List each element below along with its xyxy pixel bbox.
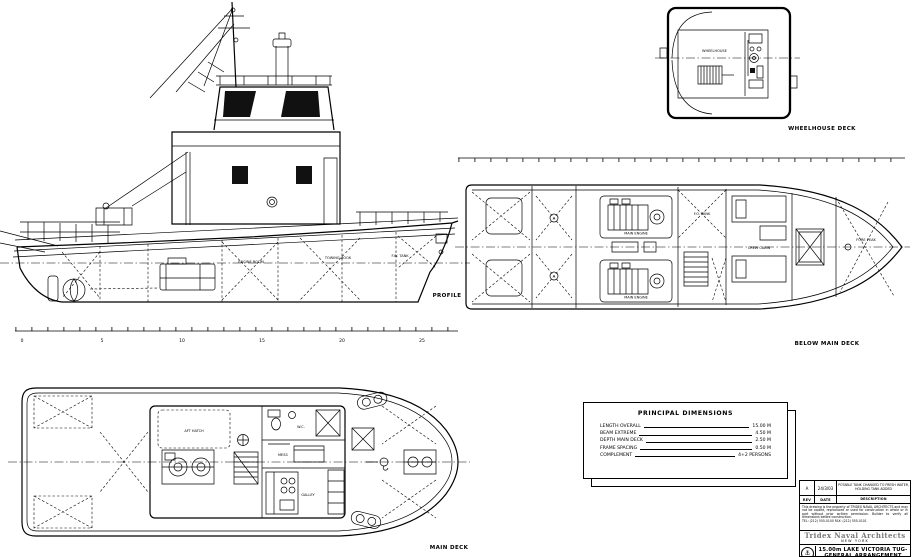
leader-line bbox=[644, 426, 750, 428]
main-deck-view: AFT HATCH W.C. bbox=[8, 388, 470, 551]
exhaust-stack bbox=[273, 33, 291, 85]
revision-description: POTABLE TANK CHANGED TO FRESH WATER, HOL… bbox=[837, 481, 910, 495]
dim-value: 15.00 M bbox=[752, 423, 771, 430]
mess-room: MESS bbox=[268, 444, 324, 462]
frame-number: 5 bbox=[101, 338, 104, 344]
profile-caption: PROFILE bbox=[433, 293, 462, 299]
leader-line bbox=[635, 455, 735, 457]
profile-frame-ruler: 0 5 10 15 20 25 bbox=[15, 329, 458, 344]
dim-value: 0.50 M bbox=[755, 445, 771, 452]
frame-number: 25 bbox=[419, 338, 425, 344]
wc-room: W.C. bbox=[268, 410, 340, 436]
description-header: DESCRIPTION bbox=[837, 496, 910, 503]
main-deck-stair bbox=[234, 452, 258, 484]
revision-date: 24/3/03 bbox=[815, 481, 837, 495]
leader-line bbox=[640, 448, 752, 450]
main-deck-caption: MAIN DECK bbox=[430, 545, 469, 551]
ga-drawing-sheet: ENGINE ROOM TOWING HOOK F.W. TANK 0 5 10… bbox=[0, 0, 912, 557]
dimension-row: BEAM EXTREME 4.50 M bbox=[600, 430, 771, 437]
title-block: A 24/3/03 POTABLE TANK CHANGED TO FRESH … bbox=[799, 480, 911, 557]
dim-value: 2.50 M bbox=[755, 437, 771, 444]
firm-name: Tridex Naval Architects bbox=[804, 532, 905, 539]
principal-dimensions-table: PRINCIPAL DIMENSIONS LENGTH OVERALL 15.0… bbox=[583, 402, 788, 479]
towing-hook-label: TOWING HOOK bbox=[324, 256, 352, 260]
fo-tank-label: F.O. TANK bbox=[694, 212, 711, 216]
date-header: DATE bbox=[815, 496, 837, 503]
property-note: This drawing is the property of TRIDEX N… bbox=[800, 504, 910, 531]
dimension-row: LENGTH OVERALL 15.00 M bbox=[600, 423, 771, 430]
wheelhouse-label: WHEELHOUSE bbox=[702, 49, 727, 53]
dim-label: COMPLEMENT bbox=[600, 452, 632, 459]
dim-label: DEPTH MAIN DECK bbox=[600, 437, 643, 444]
bollards bbox=[350, 391, 388, 530]
wheelhouse-deck-caption: WHEELHOUSE DECK bbox=[788, 126, 856, 132]
dimension-row: FRAME SPACING 0.50 M bbox=[600, 445, 771, 452]
revision-row: A 24/3/03 POTABLE TANK CHANGED TO FRESH … bbox=[800, 481, 910, 496]
frame-number: 10 bbox=[179, 338, 185, 344]
leader-line bbox=[646, 441, 752, 443]
below-deck-stair bbox=[684, 252, 708, 286]
profile-deckhouse bbox=[172, 132, 340, 224]
profile-view: ENGINE ROOM TOWING HOOK F.W. TANK 0 5 10… bbox=[0, 2, 470, 344]
propeller-rudder bbox=[48, 276, 158, 301]
deck-tab bbox=[660, 48, 667, 58]
leader-line bbox=[639, 434, 752, 436]
revision-letter: A bbox=[800, 481, 815, 495]
dim-value: 4.50 M bbox=[755, 430, 771, 437]
contact-text: TEL: (212) 555-0100 FAX: (212) 555-0101 bbox=[802, 519, 867, 523]
frame-number: 0 bbox=[21, 338, 24, 344]
dimension-row: DEPTH MAIN DECK 2.50 M bbox=[600, 437, 771, 444]
firm-logo: ⚓ bbox=[800, 546, 816, 557]
below-main-deck-caption: BELOW MAIN DECK bbox=[795, 341, 860, 347]
towing-winch bbox=[162, 450, 214, 484]
anchor-icon: ⚓ bbox=[801, 547, 814, 557]
profile-wheelhouse bbox=[214, 76, 334, 130]
aft-hatch-label: AFT HATCH bbox=[184, 429, 204, 433]
firm-row: Tridex Naval Architects NEW YORK bbox=[800, 531, 910, 545]
aft-railing bbox=[20, 212, 448, 243]
drawing-title-row: ⚓ 15.00m LAKE VICTORIA TUG- GENERAL ARRA… bbox=[800, 545, 910, 557]
main-engine-label: MAIN ENGINE bbox=[624, 232, 648, 236]
frame-number: 15 bbox=[259, 338, 265, 344]
crew-cabin: CREW CABIN bbox=[732, 196, 786, 282]
note-text: This drawing is the property of TRIDEX N… bbox=[802, 505, 908, 520]
fuel-oil-tanks: F.O. TANK bbox=[678, 190, 726, 302]
engine-room: MAIN ENGINE MAIN ENGINE bbox=[600, 196, 672, 302]
dimensions-title: PRINCIPAL DIMENSIONS bbox=[584, 410, 787, 417]
drawing-title: 15.00m LAKE VICTORIA TUG- GENERAL ARRANG… bbox=[816, 547, 910, 557]
wc-label: W.C. bbox=[297, 425, 305, 429]
mess-label: MESS bbox=[278, 453, 288, 457]
mast bbox=[150, 2, 250, 98]
steering-console bbox=[745, 32, 763, 96]
drawing-title-line2: GENERAL ARRANGEMENT bbox=[816, 553, 910, 557]
rev-header: REV bbox=[800, 496, 815, 503]
revision-header-row: REV DATE DESCRIPTION bbox=[800, 496, 910, 504]
engine-room-label: ENGINE ROOM bbox=[238, 260, 263, 264]
dimension-row: COMPLEMENT 4+2 PERSONS bbox=[600, 452, 771, 459]
dim-label: LENGTH OVERALL bbox=[600, 423, 641, 430]
aft-crane bbox=[96, 152, 190, 225]
wheelhouse-ladder bbox=[698, 66, 734, 84]
crew-cabin-label: CREW CABIN bbox=[748, 246, 771, 250]
towing-hook bbox=[352, 428, 388, 470]
fw-tank-label: F.W. TANK bbox=[391, 254, 409, 258]
main-engine-label: MAIN ENGINE bbox=[624, 296, 648, 300]
dim-label: BEAM EXTREME bbox=[600, 430, 636, 437]
galley: GALLEY bbox=[266, 470, 344, 514]
below-deck-ruler bbox=[458, 158, 905, 160]
galley-label: GALLEY bbox=[301, 493, 315, 497]
below-main-deck-view: MAIN ENGINE MAIN ENGINE F.O. TANK CREW C… bbox=[455, 158, 910, 347]
dim-value: 4+2 PERSONS bbox=[738, 452, 771, 459]
wheelhouse-deck-view: WHEELHOUSE WHEELHOUSE DECK bbox=[655, 8, 856, 132]
frame-number: 20 bbox=[339, 338, 345, 344]
dim-label: FRAME SPACING bbox=[600, 445, 637, 452]
fore-peak-label: FORE PEAK bbox=[856, 238, 876, 242]
firm-location: NEW YORK bbox=[841, 539, 869, 543]
windlass bbox=[404, 450, 436, 474]
